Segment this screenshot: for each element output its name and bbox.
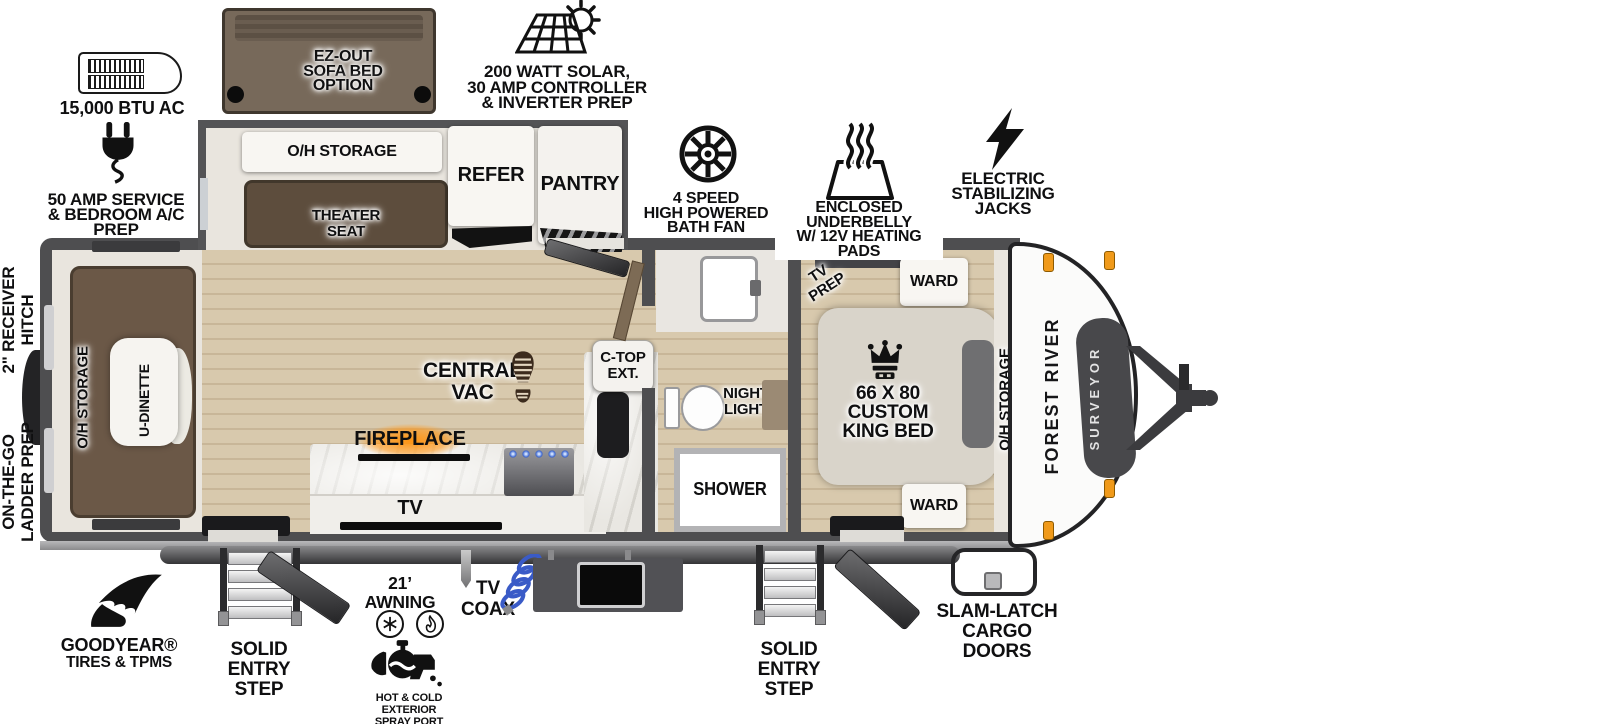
cargo-door-latch [984, 572, 1002, 590]
pantry: PANTRY [538, 126, 622, 244]
refer-label: REFER [458, 165, 525, 186]
lightning-bolt-icon [984, 108, 1026, 170]
toilet-tank [664, 387, 680, 429]
underbelly-heat-icon [822, 122, 898, 202]
jacks-label: ELECTRICSTABILIZINGJACKS [938, 171, 1068, 216]
ward-bottom-label: WARD [910, 498, 958, 515]
dinette-window-top [92, 241, 180, 252]
bath-wall-left-upper [642, 248, 655, 306]
ac-label: 15,000 BTU AC [52, 99, 192, 118]
ladder-prep-label: ON-THE-GOLADDER PREP [0, 407, 37, 557]
snowflake-icon [382, 616, 398, 632]
forest-river-logo-text: FOREST RIVER [1043, 301, 1065, 491]
goodyear-wingfoot-icon [88, 570, 164, 636]
tongue-hitch-jack [1126, 346, 1218, 450]
exterior-tv-screen [577, 562, 645, 608]
bath-fan-label: 4 SPEEDHIGH POWEREDBATH FAN [640, 190, 772, 238]
marker-light [1043, 253, 1054, 272]
entry-threshold [840, 530, 904, 542]
service-label: 50 AMP SERVICE& BEDROOM A/C PREP [26, 192, 206, 237]
cold-circle [376, 610, 404, 638]
entry-threshold [208, 530, 278, 542]
slideout-oh-storage-label: O/H STORAGE [287, 144, 397, 161]
dinette-window-bottom [92, 519, 180, 530]
theater-seat-label: THEATERSEAT [296, 208, 396, 240]
bath-faucet [750, 280, 761, 296]
solar-label: 200 WATT SOLAR,30 AMP CONTROLLER& INVERT… [467, 64, 647, 111]
bath-wall-left-lower [642, 388, 655, 532]
wardrobe-top: WARD [900, 258, 968, 306]
solid-entry-step-label: SOLID ENTRYSTEP [199, 640, 319, 700]
tv-label: TV [375, 498, 445, 519]
entry-steps [754, 545, 826, 625]
countertop-extension: C-TOPEXT. [592, 340, 654, 392]
crown-icon [866, 340, 904, 380]
spray-port-label: HOT & COLD EXTERIORSPRAY PORT [352, 692, 466, 724]
rear-oh-storage-label: O/H STORAGE [76, 343, 93, 453]
spray-port-faucet-icon [368, 640, 452, 688]
bath-cabinet [762, 380, 790, 430]
fireplace-label: FIREPLACE [340, 429, 480, 450]
rear-window [44, 428, 54, 493]
receiver-hitch-label: 2" RECEIVERHITCH [0, 250, 37, 390]
tv-hanger [548, 550, 554, 560]
sofa-bed-label: EZ-OUTSOFA BEDOPTION [283, 50, 403, 94]
shower-label: SHOWER [684, 480, 776, 499]
ctop-ext-label: C-TOPEXT. [600, 350, 645, 382]
underbelly-label: ENCLOSED UNDERBELLYW/ 12V HEATING PADS [775, 200, 943, 260]
boot-print-icon [508, 348, 538, 406]
slideout-oh-storage-cabinet: O/H STORAGE [242, 132, 442, 172]
hot-circle [416, 610, 444, 638]
flame-icon [423, 615, 437, 633]
awning-label: 21’ AWNING [352, 574, 448, 611]
bed-pillow [962, 340, 994, 448]
goodyear-label: GOODYEAR® TIRES & TPMS [49, 636, 189, 672]
rooftop-ac-icon [78, 52, 182, 94]
marker-light [1104, 251, 1115, 270]
bath-fan-icon [678, 124, 738, 184]
king-bed-label: 66 X 80CUSTOMKING BED [838, 384, 938, 441]
ward-top-label: WARD [910, 274, 958, 291]
marker-light [1104, 479, 1115, 498]
refrigerator: REFER [448, 126, 534, 226]
solid-entry-step-label: SOLID ENTRYSTEP [730, 640, 848, 700]
pantry-label: PANTRY [541, 174, 620, 195]
u-dinette-label: U-DINETTE [137, 348, 154, 453]
fireplace-bar [358, 454, 470, 461]
marker-light [1043, 521, 1054, 540]
kitchen-sink [597, 392, 629, 458]
power-plug-icon [98, 122, 138, 186]
wardrobe-bottom: WARD [902, 484, 966, 528]
slam-latch-label: SLAM-LATCHCARGO DOORS [932, 602, 1062, 662]
surveyor-logo-text: SURVEYOR [1088, 333, 1104, 463]
tv-hanger [625, 550, 631, 560]
shower: SHOWER [674, 448, 786, 532]
stove-burners [507, 448, 571, 460]
rv-floorplan-diagram: O/H STORAGE U-DINETTE O/H STORAGE THEATE… [0, 0, 1600, 724]
tv-bar [340, 522, 502, 530]
rear-window [44, 305, 54, 370]
solar-panel-icon [515, 0, 603, 62]
